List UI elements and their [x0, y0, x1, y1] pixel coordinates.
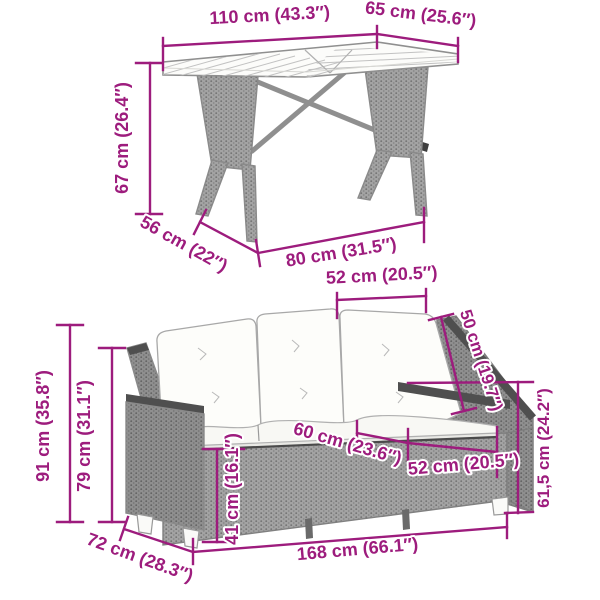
label-table-top-depth: 65 cm (25.6″)	[364, 0, 477, 31]
dim-table-height	[136, 63, 162, 214]
table-left-leg	[196, 74, 258, 242]
label-sofa-total-height: 91 cm (35.8″)	[33, 370, 53, 482]
diagram-canvas: 110 cm (43.3″) 65 cm (25.6″) 67 cm (26.4…	[0, 0, 600, 600]
garden-table	[120, 42, 460, 242]
dimension-diagram: 110 cm (43.3″) 65 cm (25.6″) 67 cm (26.4…	[0, 0, 600, 600]
label-sofa-total-width: 168 cm (66.1″)	[296, 534, 419, 565]
table-right-leg	[358, 67, 428, 216]
label-sofa-armrest-height: 79 cm (31.1″)	[74, 380, 94, 492]
label-sofa-back-cushion-width: 52 cm (20.5″)	[325, 262, 438, 288]
label-table-base-depth: 56 cm (22″)	[137, 212, 231, 276]
back-cushion-middle	[257, 309, 344, 433]
label-table-top-length: 110 cm (43.3″)	[209, 2, 331, 28]
label-table-height: 67 cm (26.4″)	[112, 82, 132, 194]
sofa-left-armrest	[126, 394, 204, 530]
label-sofa-reclined-height: 61,5 cm (24.2″)	[534, 388, 553, 508]
dim-sofa-armrest-height	[99, 348, 125, 522]
label-sofa-seat-height: 41 cm (16.1″)	[222, 433, 242, 545]
